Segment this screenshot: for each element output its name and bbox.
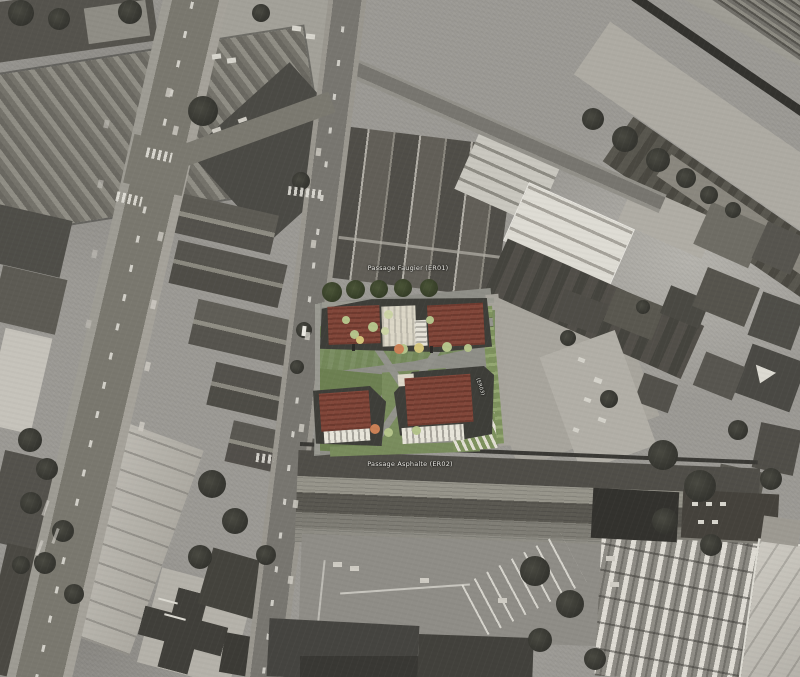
- siteplan-shape: [398, 373, 415, 386]
- photo-shape: [297, 450, 760, 495]
- siteplan-tree: [322, 282, 342, 302]
- siteplan-tree: [420, 279, 438, 297]
- road-marking: [578, 357, 586, 363]
- siteplan-tree: [442, 342, 452, 352]
- siteplan-tree: [350, 330, 359, 339]
- tree-canopy: [292, 172, 310, 190]
- photo-shape: [224, 420, 323, 482]
- photo-shape: [340, 583, 470, 594]
- photo-shape: [338, 236, 503, 259]
- photo-shape: [0, 328, 52, 434]
- photo-shape: [484, 239, 704, 379]
- photo-shape: [417, 634, 533, 677]
- road-marking: [144, 362, 151, 372]
- road-marking: [288, 576, 294, 585]
- siteplan-shape: [312, 288, 504, 456]
- road-marking: [97, 180, 104, 189]
- photo-shape: [0, 543, 64, 677]
- tree-canopy: [676, 168, 696, 188]
- tree-canopy: [188, 545, 212, 569]
- tree-canopy: [760, 468, 782, 490]
- photo-shape: [140, 91, 335, 180]
- road-marking: [299, 424, 305, 433]
- photo-shape: [137, 567, 254, 677]
- road-marking: [350, 566, 359, 571]
- photo-shape: [748, 292, 800, 351]
- tree-canopy: [684, 470, 716, 502]
- road-marking: [288, 186, 323, 199]
- labels-layer: Passage Faugier (ER01) Passage Asphalte …: [0, 0, 800, 677]
- road-marking: [85, 320, 92, 329]
- aerial-map: Passage Faugier (ER01) Passage Asphalte …: [0, 0, 800, 677]
- road-marking: [145, 147, 173, 163]
- road-marking: [150, 300, 157, 310]
- passage-asphalte-label: Passage Asphalte (ER02): [350, 461, 470, 468]
- road-marking: [712, 520, 718, 524]
- road-marking: [35, 540, 43, 556]
- tree-canopy: [20, 492, 42, 514]
- photo-buildings-roads-layer: [0, 0, 800, 677]
- photo-shape: [84, 0, 150, 44]
- tree-canopy: [582, 108, 604, 130]
- siteplan-shape: [320, 298, 492, 352]
- road-marking: [51, 528, 59, 544]
- photo-shape: [454, 119, 565, 224]
- photo-shape: [760, 515, 800, 546]
- photo-shape: [0, 27, 327, 235]
- road-marking: [212, 53, 222, 59]
- photo-shape: [540, 330, 657, 472]
- siteplan-shape: [315, 310, 495, 374]
- siteplan-tree: [384, 310, 393, 319]
- tree-canopy: [584, 648, 606, 670]
- siteplan-tree: [356, 336, 364, 344]
- siteplan-shape: [315, 304, 320, 454]
- photo-shape: [295, 476, 763, 561]
- siteplan-tree: [370, 424, 380, 434]
- photo-shape: [18, 410, 203, 655]
- siteplan-shape: [485, 294, 511, 447]
- tree-canopy: [36, 458, 58, 480]
- photo-shape: [168, 240, 287, 308]
- photo-shape: [627, 516, 675, 549]
- siteplan-shape: [319, 390, 372, 431]
- road-marking: [138, 422, 145, 432]
- road-marking: [103, 120, 110, 129]
- road-marking: [706, 502, 712, 506]
- tree-canopy: [725, 202, 741, 218]
- siteplan-shape: [394, 366, 494, 440]
- photo-shape: [188, 299, 300, 367]
- photo-shape: [712, 464, 766, 515]
- photo-shape: [657, 154, 800, 311]
- siteplan-tree: [381, 327, 389, 335]
- siteplan-trees-layer: [0, 0, 800, 677]
- photo-shape: [316, 560, 325, 630]
- tree-canopy: [64, 584, 84, 604]
- photo-shape: [298, 534, 661, 649]
- road-marking: [301, 326, 306, 336]
- road-marking: [293, 500, 299, 509]
- siteplan-tree: [384, 428, 393, 437]
- photo-shape: [752, 422, 800, 476]
- photo-shape: [617, 183, 718, 259]
- tree-canopy: [222, 508, 248, 534]
- road-marking: [212, 127, 222, 134]
- tree-canopy: [188, 96, 218, 126]
- photo-shape: [603, 117, 800, 326]
- photo-shape: [554, 289, 608, 335]
- photo-shape: [219, 632, 271, 677]
- road-marking: [238, 117, 248, 124]
- tree-canopy: [700, 534, 722, 556]
- tree-canopy: [560, 330, 576, 346]
- tree-canopy: [198, 470, 226, 498]
- road-marking: [115, 191, 143, 207]
- tree-canopy: [520, 556, 550, 586]
- siteplan-shape: [430, 346, 433, 353]
- photo-shape: [267, 618, 420, 677]
- photo-shape: [206, 362, 309, 426]
- road-marking: [593, 377, 602, 384]
- road-marking: [333, 562, 342, 567]
- photo-shape: [631, 0, 800, 147]
- photo-shape: [693, 202, 767, 268]
- photo-shape: [554, 496, 604, 537]
- tree-canopy: [256, 545, 276, 565]
- siteplan-shape: [381, 305, 416, 346]
- photo-shape: [594, 536, 773, 677]
- photo-shape: [0, 265, 67, 334]
- siteplan-tree: [412, 426, 421, 435]
- road-marking: [498, 598, 507, 603]
- photo-shape: [340, 55, 667, 213]
- photo-shape: [681, 490, 779, 543]
- road-marking: [292, 26, 301, 32]
- photo-shape: [325, 126, 514, 298]
- siteplan-shape: [404, 374, 473, 426]
- tree-canopy: [290, 360, 304, 374]
- tree-canopy: [528, 628, 552, 652]
- photo-shape: [155, 189, 279, 255]
- siteplan-shape: [316, 318, 494, 346]
- photo-shape: [571, 0, 800, 169]
- tree-canopy: [252, 4, 270, 22]
- photo-shape: [0, 450, 68, 554]
- tree-canopy: [296, 322, 312, 338]
- siteplan-shape: [313, 386, 386, 446]
- photo-shape: [165, 0, 359, 103]
- siteplan-shape: [451, 412, 498, 452]
- road-marking: [598, 417, 607, 423]
- siteplan-layer: [0, 0, 800, 677]
- siteplan-shape: [427, 303, 485, 348]
- siteplan-tree: [398, 344, 408, 354]
- photo-shape: [693, 351, 745, 400]
- road-marking: [41, 500, 49, 516]
- road-marking: [165, 88, 172, 98]
- tree-canopy: [556, 590, 584, 618]
- road-marking: [158, 597, 178, 604]
- tree-canopy: [48, 8, 70, 30]
- siteplan-shape: [315, 368, 389, 454]
- photo-shape: [603, 288, 665, 341]
- siteplan-shape: [402, 424, 465, 444]
- photo-shape: [239, 0, 371, 677]
- road-marking: [172, 126, 179, 136]
- photo-shape: [741, 541, 800, 677]
- tree-canopy: [728, 420, 748, 440]
- siteplan-tree: [346, 280, 365, 299]
- photo-shape: [0, 204, 73, 277]
- siteplan-tree: [368, 322, 378, 332]
- photo-shape: [258, 0, 351, 677]
- siteplan-shape: [322, 298, 494, 308]
- siteplan-shape: [324, 428, 371, 443]
- photo-shape: [752, 221, 800, 275]
- photo-shape: [574, 22, 800, 267]
- photo-shape: [123, 134, 193, 196]
- road-marking: [572, 427, 579, 433]
- road-marking: [256, 453, 275, 464]
- tree-canopy: [636, 300, 650, 314]
- passage-faugier-label: Passage Faugier (ER01): [348, 265, 468, 272]
- photo-road-markings-layer: [0, 0, 800, 677]
- road-marking: [698, 520, 704, 524]
- photo-shape: [300, 442, 758, 464]
- photo-shape: [504, 183, 633, 286]
- siteplan-shape: [330, 441, 480, 456]
- road-marking: [692, 502, 698, 506]
- tree-canopy: [600, 390, 618, 408]
- photo-shape: [593, 465, 650, 512]
- tree-canopy: [52, 520, 74, 542]
- siteplan-tree: [426, 316, 434, 324]
- photo-shape: [28, 0, 202, 677]
- siteplan-tree: [394, 279, 412, 297]
- photo-trees-layer: [0, 0, 800, 677]
- road-marking: [316, 148, 322, 157]
- road-marking: [606, 556, 615, 561]
- tree-canopy: [18, 428, 42, 452]
- road-marking: [164, 613, 186, 621]
- road-marking: [91, 250, 98, 259]
- road-marking: [305, 332, 311, 341]
- siteplan-shape: [352, 344, 355, 351]
- siteplan-shape: [481, 306, 504, 444]
- tree-canopy: [12, 556, 30, 574]
- tree-canopy: [648, 440, 678, 470]
- photo-shape: [750, 364, 776, 387]
- photo-shape: [590, 0, 800, 131]
- tree-canopy: [700, 186, 718, 204]
- photo-shape: [0, 0, 236, 677]
- photo-shape: [300, 656, 525, 677]
- road-marking: [584, 397, 592, 403]
- road-marking: [610, 582, 619, 587]
- siteplan-shape: [327, 305, 380, 345]
- siteplan-tree: [370, 280, 388, 298]
- siteplan-shape: [371, 312, 465, 447]
- siteplan-shape: [382, 368, 446, 446]
- photo-shape: [131, 580, 235, 677]
- tree-canopy: [34, 552, 56, 574]
- photo-shape: [591, 488, 679, 542]
- siteplan-tree: [464, 344, 472, 352]
- tree-canopy: [612, 126, 638, 152]
- photo-shape: [459, 257, 660, 469]
- siteplan-shape: [351, 312, 441, 440]
- tree-canopy: [652, 508, 678, 534]
- road-marking: [227, 57, 237, 63]
- photo-shape: [660, 285, 710, 329]
- road-marking: [420, 578, 429, 583]
- photo-shape: [0, 0, 158, 63]
- photo-shape: [692, 267, 760, 327]
- road-marking: [720, 502, 726, 506]
- tree-canopy: [118, 0, 142, 24]
- road-marking: [157, 232, 164, 242]
- er03-label: (ER03): [473, 374, 486, 400]
- photo-shape: [189, 62, 370, 242]
- siteplan-tree: [342, 316, 350, 324]
- siteplan-tree: [414, 343, 424, 353]
- siteplan-tree: [394, 344, 404, 354]
- road-marking: [306, 34, 315, 40]
- road-marking: [311, 240, 317, 249]
- tree-canopy: [646, 148, 670, 172]
- photo-shape: [461, 533, 586, 635]
- photo-shape: [634, 373, 678, 414]
- tree-canopy: [8, 0, 34, 26]
- siteplan-shape: [414, 320, 427, 347]
- photo-shape: [735, 344, 800, 413]
- photo-shape: [197, 547, 280, 622]
